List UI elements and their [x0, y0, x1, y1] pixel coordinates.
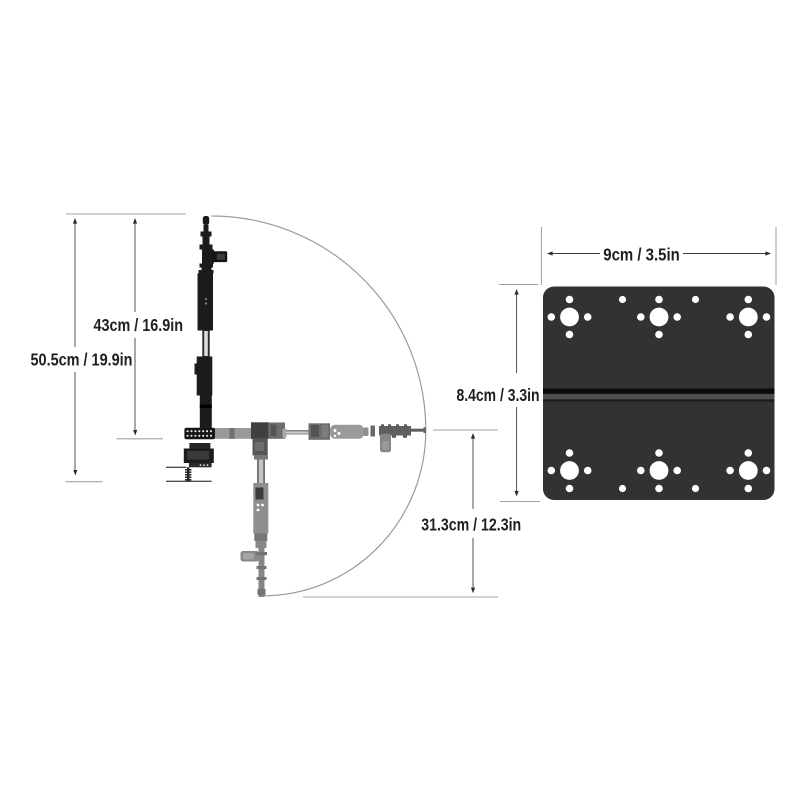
svg-text:50.5cm / 19.9in: 50.5cm / 19.9in [31, 350, 133, 370]
svg-text:9cm / 3.5in: 9cm / 3.5in [603, 245, 680, 265]
svg-text:43cm / 16.9in: 43cm / 16.9in [94, 315, 184, 335]
svg-text:31.3cm / 12.3in: 31.3cm / 12.3in [421, 515, 521, 535]
svg-text:8.4cm / 3.3in: 8.4cm / 3.3in [457, 385, 540, 405]
